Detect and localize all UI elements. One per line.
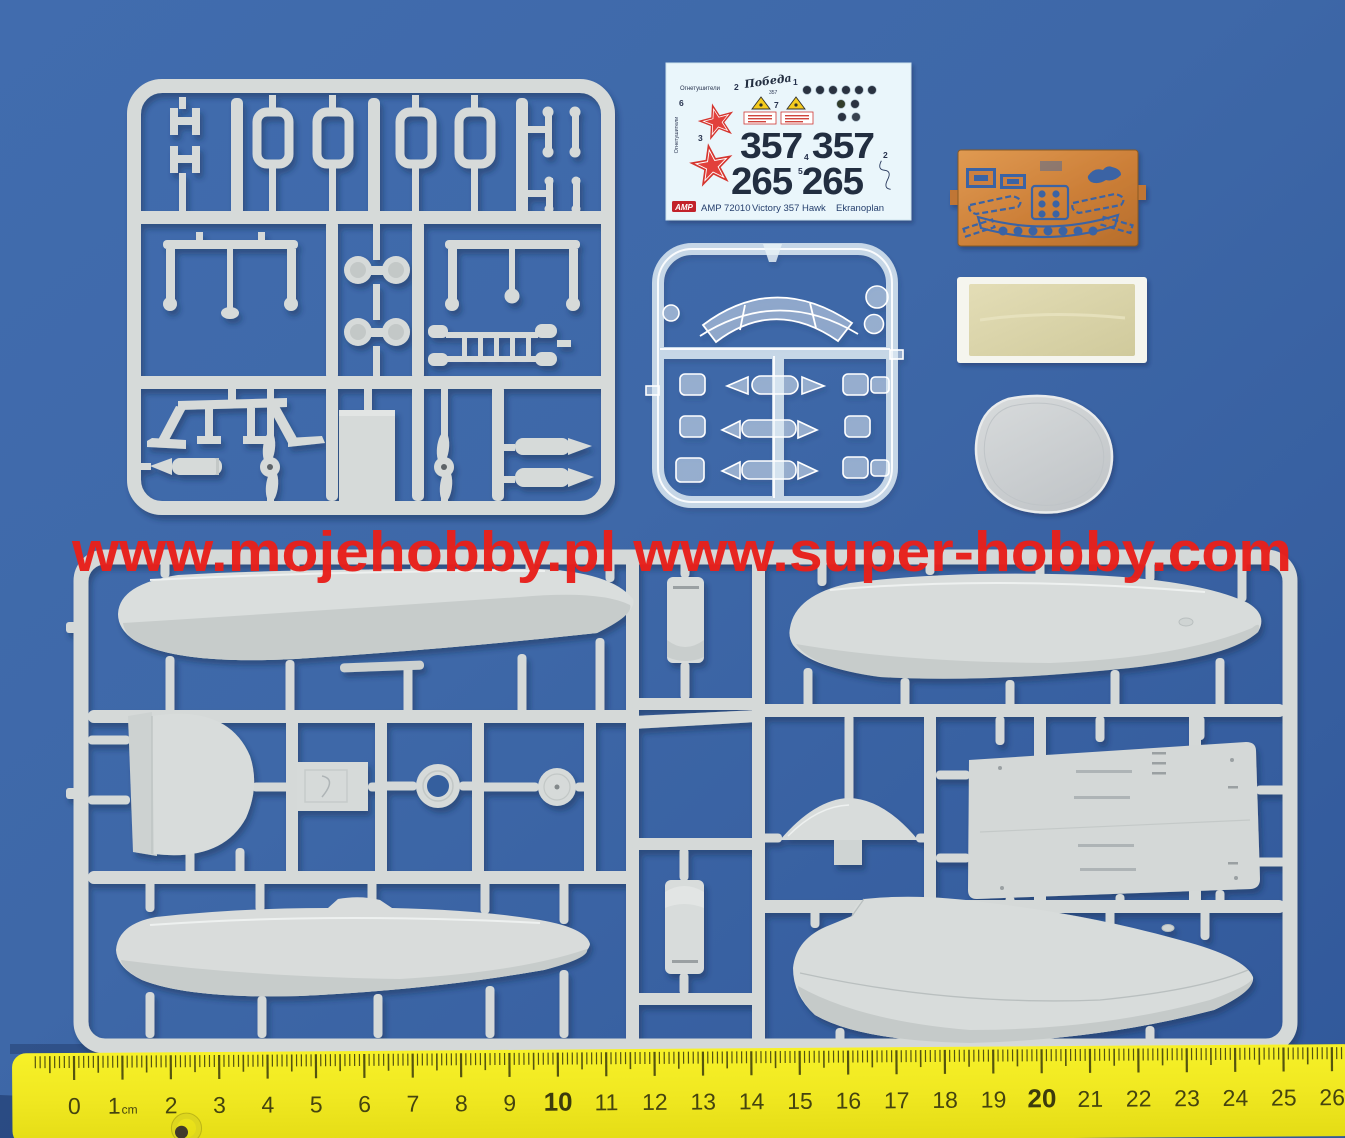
film-sheet — [957, 277, 1147, 363]
amp-logo-text: AMP — [674, 203, 693, 212]
ruler-number: 25 — [1271, 1084, 1297, 1110]
ruler-number: 16 — [835, 1087, 861, 1113]
decal-fire-extinguisher-qty: 2 — [734, 82, 739, 92]
decal-sheet: Огнетушители 2 Победа 357 1 6 Огнетушите… — [666, 63, 911, 220]
ruler-number: 5 — [310, 1091, 323, 1117]
ruler-number: 26 — [1319, 1084, 1345, 1110]
ruler-number: 7 — [406, 1091, 419, 1117]
ruler-number: 14 — [739, 1088, 765, 1114]
center-box-part-lower — [665, 880, 704, 974]
ruler-number: 9 — [503, 1090, 516, 1116]
decal-star-qty: 3 — [698, 133, 703, 143]
vacuform-canopy-part — [976, 396, 1112, 513]
decal-side-qty: 2 — [883, 150, 888, 160]
decal-kit-type: Ekranoplan — [836, 203, 884, 214]
ruler-number: 17 — [884, 1087, 910, 1113]
ruler-number: 10 — [544, 1086, 573, 1116]
ruler-number: 19 — [981, 1086, 1007, 1112]
ring-part — [416, 764, 460, 808]
ruler-number: 13 — [690, 1088, 716, 1114]
decal-gauges-qty: 1 — [793, 77, 798, 87]
photo-etch-fret — [950, 150, 1146, 246]
ruler-number: 3 — [213, 1092, 226, 1118]
ruler-number: 6 — [358, 1091, 371, 1117]
ruler-number: 12 — [642, 1089, 668, 1115]
shop-watermark: www.mojehobby.pl www.super-hobby.com — [71, 520, 1292, 584]
decal-triangle-qty: 7 — [774, 100, 779, 110]
hatch-plate-part — [297, 762, 368, 811]
ruler-number: 15 — [787, 1088, 813, 1114]
ruler-number: 0 — [68, 1093, 81, 1119]
disc-part — [538, 768, 576, 806]
decal-vertical-qty: 6 — [679, 98, 684, 108]
decal-kit-code: AMP 72010 — [701, 203, 750, 214]
ruler-number: 8 — [455, 1090, 468, 1116]
decal-fire-extinguisher-vertical-label: Огнетушители — [674, 117, 680, 154]
ruler-number: 20 — [1027, 1083, 1056, 1113]
ruler-number: 4 — [261, 1092, 274, 1118]
ruler-number: 24 — [1223, 1085, 1249, 1111]
photo-canvas: Огнетушители 2 Победа 357 1 6 Огнетушите… — [0, 0, 1345, 1138]
ruler-number: 18 — [932, 1087, 958, 1113]
ruler-number: 22 — [1126, 1085, 1152, 1111]
ruler-number: 11 — [594, 1089, 618, 1115]
ruler-number: 23 — [1174, 1085, 1200, 1111]
ruler-number: 21 — [1077, 1086, 1103, 1112]
ruler: 01cm234567891011121314151617181920212223… — [12, 1044, 1345, 1138]
kit-contents-photo: Огнетушители 2 Победа 357 1 6 Огнетушите… — [0, 0, 1345, 1138]
ruler-number: 2 — [165, 1092, 178, 1118]
deck-part — [968, 742, 1260, 899]
decal-fire-extinguisher-label: Огнетушители — [680, 86, 720, 92]
decal-kit-name: Victory 357 Hawk — [752, 203, 826, 214]
decal-row2-qty: 5 — [798, 166, 803, 176]
decal-signature-number: 357 — [769, 90, 778, 96]
center-box-part-upper — [667, 577, 704, 663]
